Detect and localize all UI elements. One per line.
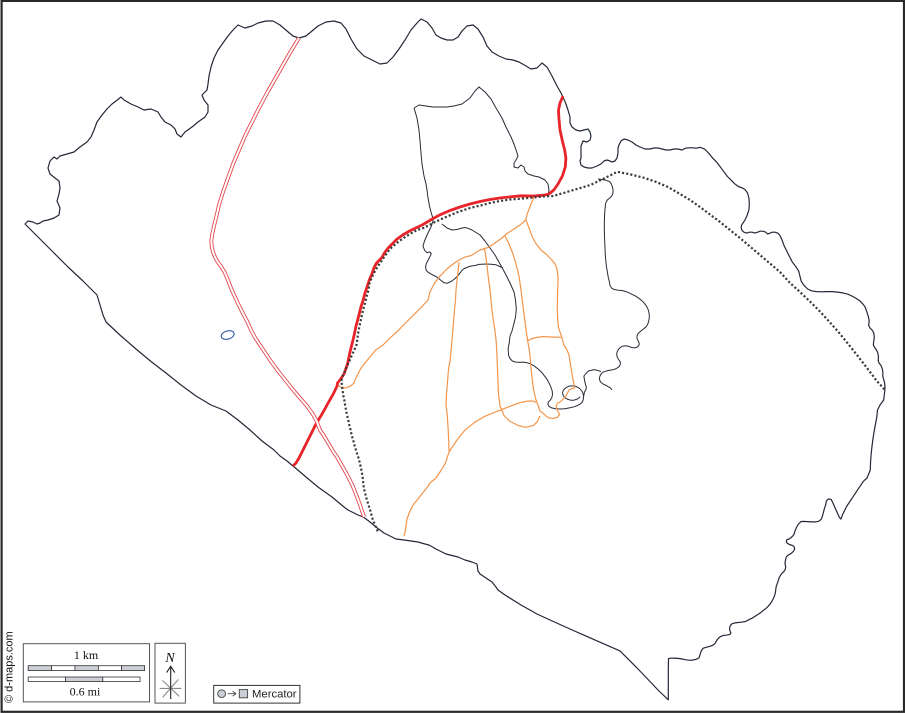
svg-text:N: N: [164, 651, 175, 666]
svg-text:1 km: 1 km: [74, 648, 99, 662]
svg-text:Mercator: Mercator: [252, 688, 297, 700]
svg-text:© d-maps.com: © d-maps.com: [4, 631, 16, 703]
svg-text:0.6 mi: 0.6 mi: [70, 685, 101, 699]
